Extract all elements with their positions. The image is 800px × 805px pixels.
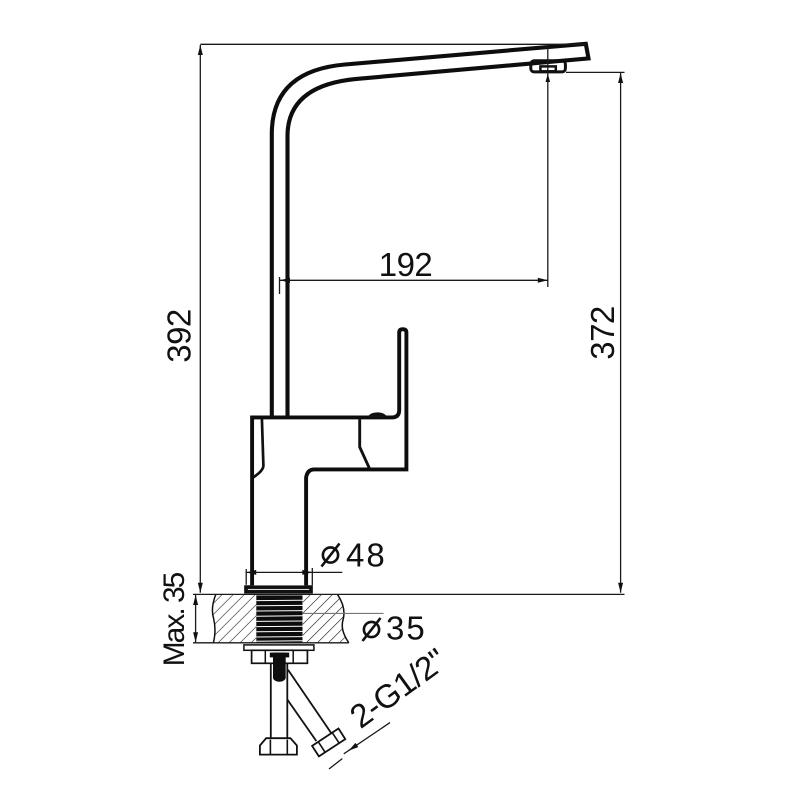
svg-text:Max. 35: Max. 35	[158, 572, 191, 666]
svg-text:392: 392	[161, 309, 198, 363]
svg-text:48: 48	[346, 537, 387, 574]
svg-text:192: 192	[379, 246, 433, 283]
svg-text:35: 35	[386, 610, 427, 647]
svg-text:372: 372	[584, 306, 621, 360]
